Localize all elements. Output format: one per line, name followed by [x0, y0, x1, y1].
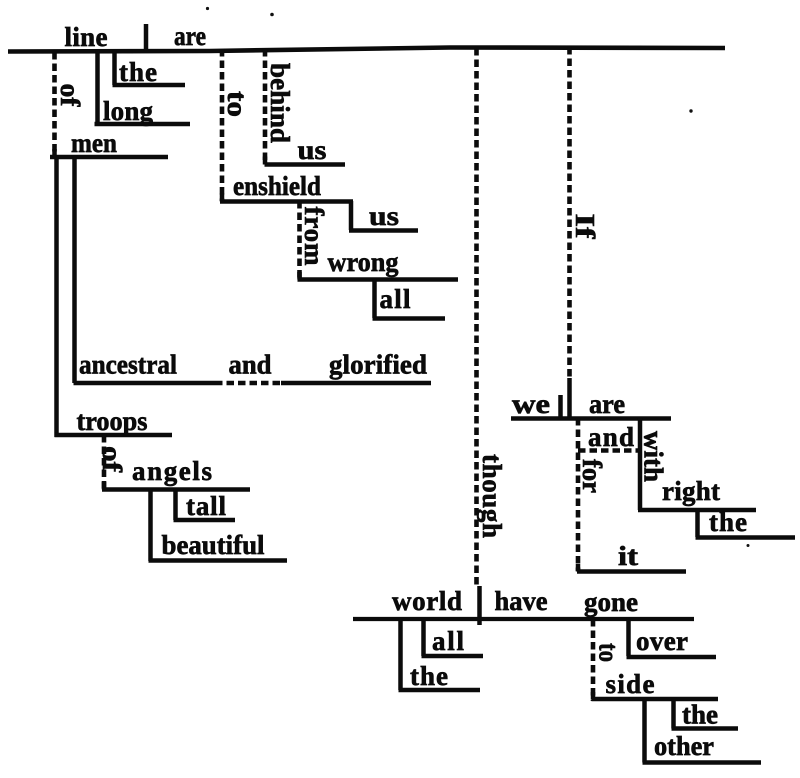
svg-text:from: from [299, 207, 329, 267]
svg-text:men: men [71, 128, 117, 158]
svg-text:us: us [298, 135, 327, 165]
svg-text:the: the [119, 57, 157, 87]
svg-text:side: side [606, 669, 655, 699]
svg-text:glorified: glorified [329, 350, 427, 380]
svg-text:wrong: wrong [328, 247, 399, 277]
svg-text:it: it [618, 541, 638, 571]
svg-text:ancestral: ancestral [79, 350, 177, 380]
svg-text:line: line [65, 22, 108, 52]
svg-text:world: world [392, 586, 462, 616]
svg-text:long: long [103, 96, 154, 126]
svg-text:the: the [709, 507, 747, 537]
svg-text:of: of [97, 446, 127, 473]
svg-text:to: to [594, 643, 624, 662]
svg-text:and: and [229, 350, 272, 380]
svg-text:gone: gone [584, 587, 638, 617]
svg-text:troops: troops [77, 406, 148, 436]
svg-text:all: all [432, 626, 464, 656]
svg-text:we: we [512, 389, 550, 419]
svg-text:are: are [589, 389, 625, 419]
svg-text:have: have [495, 586, 548, 616]
svg-text:behind: behind [265, 63, 295, 143]
svg-text:and: and [588, 422, 634, 452]
svg-text:all: all [380, 284, 411, 314]
svg-text:other: other [654, 731, 714, 761]
svg-text:right: right [662, 476, 720, 506]
svg-text:with: with [639, 431, 669, 482]
svg-text:tall: tall [186, 491, 226, 521]
svg-text:of: of [55, 84, 85, 108]
svg-text:If: If [570, 214, 600, 240]
svg-text:the: the [682, 700, 718, 730]
svg-text:are: are [174, 21, 206, 51]
svg-text:us: us [369, 201, 399, 231]
svg-text:the: the [410, 661, 448, 691]
svg-text:beautiful: beautiful [162, 530, 265, 560]
svg-text:enshield: enshield [233, 171, 321, 201]
svg-text:to: to [222, 91, 252, 117]
svg-text:for: for [577, 459, 607, 493]
svg-text:though: though [477, 454, 507, 538]
svg-text:over: over [636, 626, 688, 656]
